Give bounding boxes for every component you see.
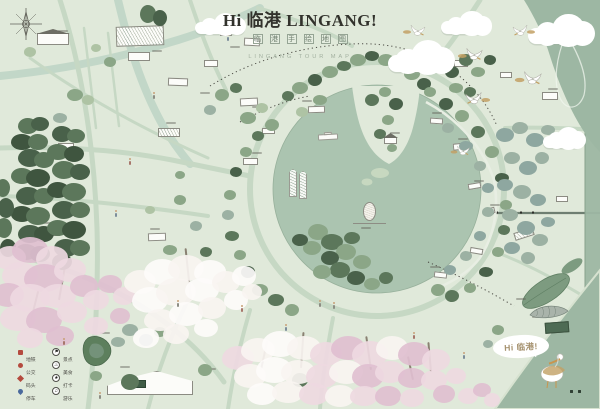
twin-tower-left [289,169,297,197]
seal-character: 临 [253,34,263,44]
parking-icon [17,388,24,395]
water-drop-sculpture [363,202,376,221]
legend-label-text: 停车 [26,395,36,402]
seal-character: 图 [338,34,348,44]
whale-illustration [528,300,570,322]
dock-icon [17,375,24,382]
ferry-boat [318,133,338,140]
food-icon: ♨ [52,361,60,369]
seal-character: 港 [270,34,280,44]
signature-mark [578,390,581,393]
signature-mark [570,390,573,393]
map-title-block: Hi 临港 LINGANG! 临港手绘地图 LINGANG TOUR MAP [0,6,600,64]
fun-icon: ♫ [52,387,60,395]
photo-icon-glyph: ★ [54,376,59,382]
bus-icon [18,363,23,368]
legend-label: 停车 [26,388,42,406]
legend-label: 游乐 [63,388,79,406]
sculpture-base-line [353,223,386,224]
scenic-icon: ⚑ [52,348,60,356]
seal-characters: 临港手绘地图 [0,34,600,44]
food-icon-glyph: ♨ [54,363,59,369]
scenic-icon-glyph: ⚑ [54,350,59,356]
legend-label-text: 游乐 [63,395,73,402]
metro-icon [18,350,23,355]
page-title: Hi 临港 LINGANG! [0,6,600,31]
speech-bubble-text: Hi 临港! [504,340,538,354]
map-legend: 地铁公交码头停车⚑景点♨美食★打卡♫游乐 [18,348,96,402]
twin-tower-right [299,171,307,199]
seal-character: 地 [321,34,331,44]
seal-character: 绘 [304,34,314,44]
photo-icon: ★ [52,374,60,382]
lingang-tour-map: Hi 临港 LINGANG! 临港手绘地图 LINGANG TOUR MAP 地… [0,0,600,409]
fun-icon-glyph: ♫ [54,389,59,395]
title-caption: LINGANG TOUR MAP [0,46,600,64]
seal-character: 手 [287,34,297,44]
